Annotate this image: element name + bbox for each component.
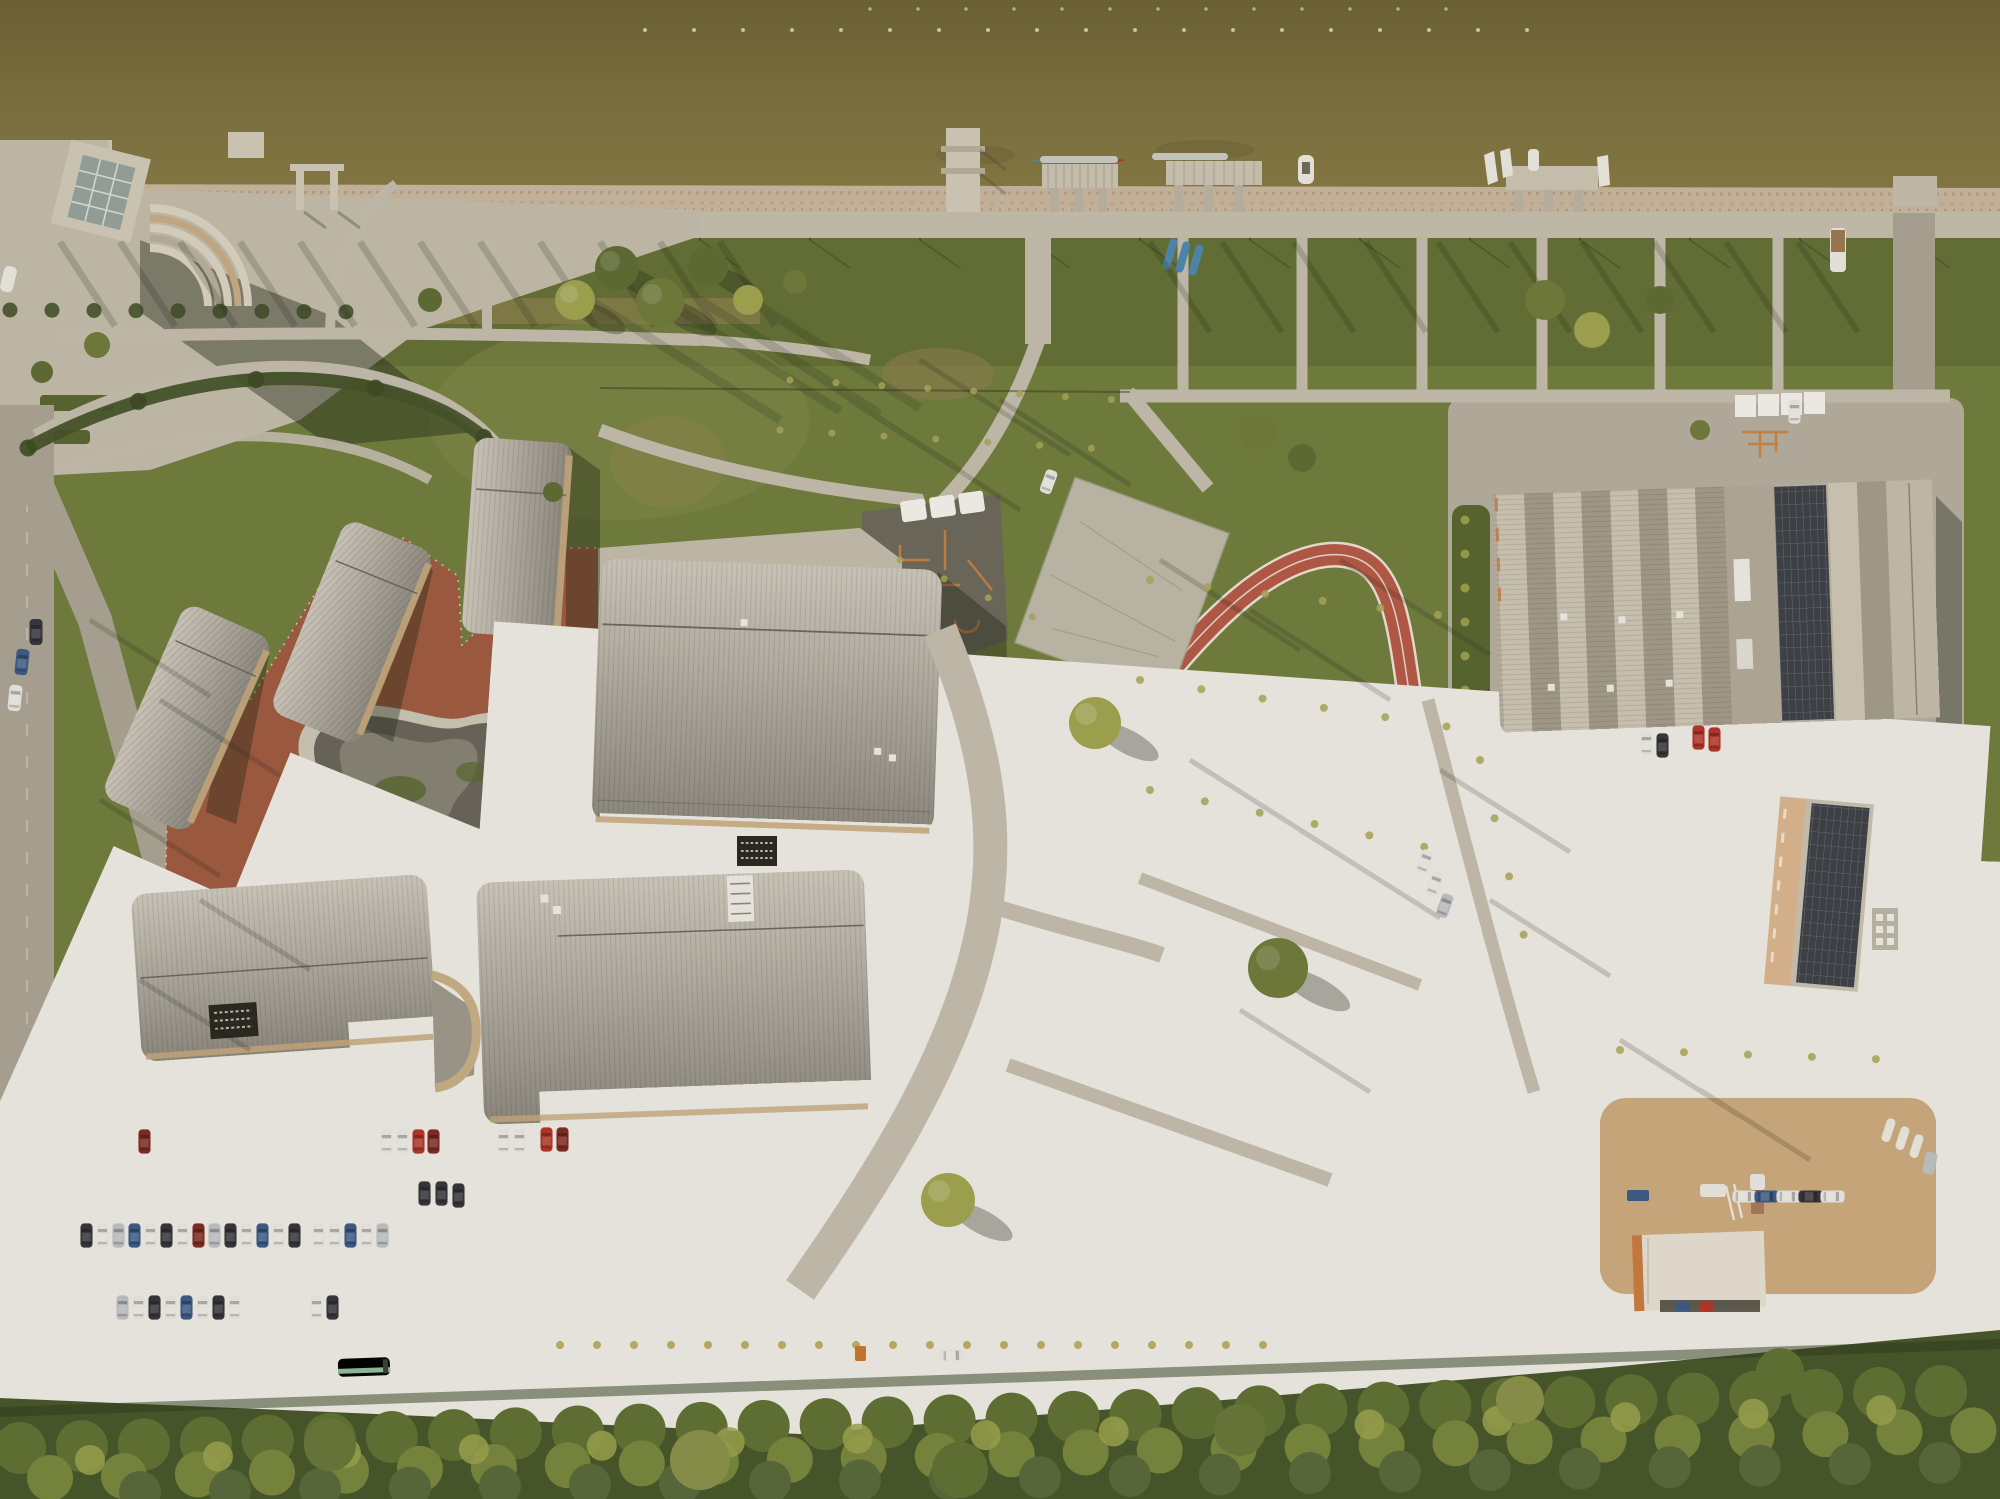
aerial-photo (0, 0, 2000, 1499)
color-grade (0, 0, 2000, 1499)
